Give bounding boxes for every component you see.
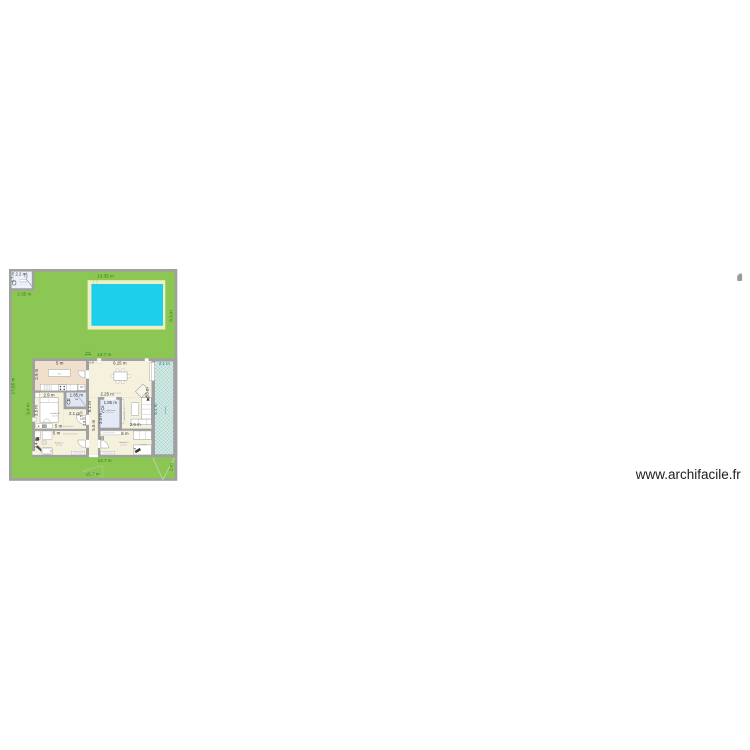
svg-text:2.9 m: 2.9 m xyxy=(44,392,55,397)
svg-text:1.7 m: 1.7 m xyxy=(10,272,15,283)
svg-text:5 m: 5 m xyxy=(121,431,129,436)
svg-text:17,65 m: 17,65 m xyxy=(10,378,15,395)
svg-text:3.5 m: 3.5 m xyxy=(34,405,39,416)
svg-text:15.7 m: 15.7 m xyxy=(86,471,100,476)
svg-text:A.M.: A.M. xyxy=(89,361,95,365)
svg-text:2.35 m: 2.35 m xyxy=(17,292,31,297)
svg-text:6.15 m: 6.15 m xyxy=(113,361,127,366)
svg-text:6.1 m: 6.1 m xyxy=(87,401,92,412)
svg-text:5.5 m: 5.5 m xyxy=(91,419,96,430)
svg-text:5 m: 5 m xyxy=(56,361,64,366)
svg-text:5 m: 5 m xyxy=(55,423,63,428)
svg-text:6.1 m: 6.1 m xyxy=(153,403,158,414)
svg-text:1.95 m: 1.95 m xyxy=(104,400,118,405)
svg-text:4.6 m2: 4.6 m2 xyxy=(108,412,114,414)
svg-text:8.3 m: 8.3 m xyxy=(169,310,174,322)
svg-text:5 m: 5 m xyxy=(53,431,61,436)
svg-text:2.25 m: 2.25 m xyxy=(100,392,114,397)
svg-text:9.4 m: 9.4 m xyxy=(26,403,31,415)
svg-text:2 m: 2 m xyxy=(169,463,174,471)
svg-text:10.2 m2: 10.2 m2 xyxy=(52,415,59,417)
svg-text:13.35 m: 13.35 m xyxy=(97,274,114,279)
svg-text:2.3 m: 2.3 m xyxy=(98,413,103,424)
svg-text:2.1 m: 2.1 m xyxy=(159,361,170,366)
svg-text:2.9 m: 2.9 m xyxy=(130,422,141,427)
svg-text:13.7 m: 13.7 m xyxy=(97,352,111,357)
svg-text:2.2 m: 2.2 m xyxy=(15,272,26,277)
svg-text:2.9 m: 2.9 m xyxy=(34,368,39,379)
svg-text:9.9 m2: 9.9 m2 xyxy=(56,445,62,447)
svg-text:www.archifacile.fr: www.archifacile.fr xyxy=(635,467,742,482)
svg-text:terrasse: terrasse xyxy=(164,405,167,414)
svg-text:ilot: ilot xyxy=(58,372,61,375)
svg-text:13.7 m: 13.7 m xyxy=(98,458,112,463)
svg-text:1.85 m: 1.85 m xyxy=(70,392,84,397)
svg-text:1.9 m: 1.9 m xyxy=(83,417,87,426)
svg-text:10.6 m2: 10.6 m2 xyxy=(120,444,127,446)
